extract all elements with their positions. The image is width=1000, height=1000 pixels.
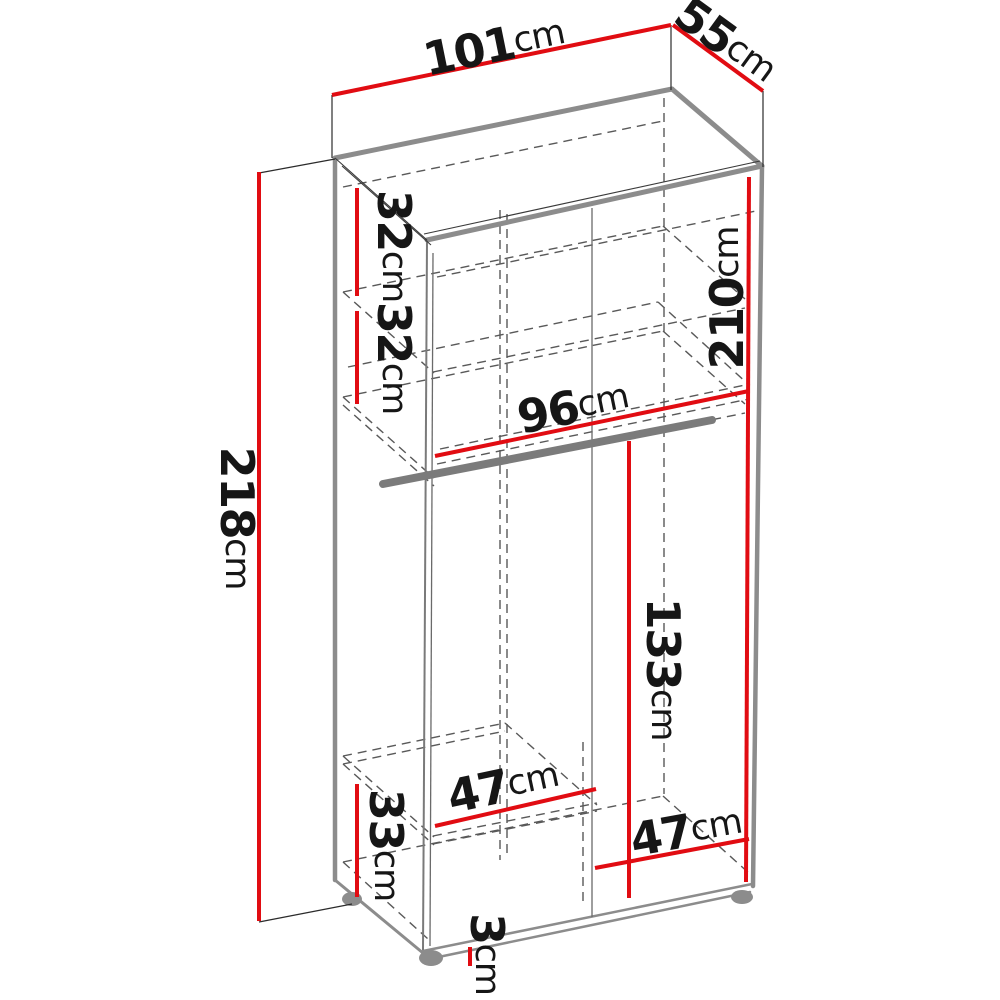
dim-number: 47 (626, 804, 695, 868)
dim-number: 133 (636, 598, 690, 690)
dim-number: 101 (419, 16, 519, 87)
foot-front-left (419, 950, 443, 966)
dim-unit: cm (707, 227, 747, 278)
top-panel-underside-back (343, 121, 663, 187)
dim-unit: cm (374, 251, 414, 302)
dim-unit: cm (217, 538, 257, 589)
front-left-edge (423, 240, 427, 950)
dim-unit: cm (643, 689, 683, 740)
dim-label-218: 218cm (210, 447, 264, 590)
dim-label-210: 210cm (700, 227, 754, 370)
dim-number: 218 (210, 447, 264, 539)
dim-label-33: 33cm (359, 789, 413, 901)
dim-number: 33 (359, 789, 413, 850)
diagram-canvas: 101cm 55cm 218cm 32cm 32cm 210cm 96cm 13… (0, 0, 1000, 1000)
dim-number: 3 (460, 913, 514, 944)
dim-label-55: 55cm (665, 0, 788, 96)
dim-unit: cm (467, 944, 507, 995)
extension-line (259, 159, 335, 173)
foot-front-right (731, 890, 753, 904)
dim-number: 32 (367, 302, 421, 363)
dim-number: 47 (442, 759, 513, 825)
inner-left-edge (430, 253, 433, 946)
dim-label-32b: 32cm (367, 302, 421, 414)
top-back-edge (335, 89, 672, 158)
dim-label-101: 101cm (419, 5, 570, 86)
dim-number: 96 (513, 380, 584, 445)
extension-line (259, 904, 352, 922)
dim-label-32a: 32cm (367, 190, 421, 302)
dim-label-133: 133cm (636, 598, 690, 741)
dim-label-96: 96cm (513, 369, 634, 444)
dim-number: 210 (700, 278, 754, 370)
dim-unit: cm (374, 363, 414, 414)
feet (342, 890, 753, 966)
dim-number: 32 (367, 190, 421, 251)
dim-unit: cm (366, 850, 406, 901)
dim-label-47l: 47cm (442, 748, 563, 824)
dimension-labels: 101cm 55cm 218cm 32cm 32cm 210cm 96cm 13… (210, 0, 787, 995)
wardrobe-dimension-diagram: 101cm 55cm 218cm 32cm 32cm 210cm 96cm 13… (0, 0, 1000, 1000)
top-right-edge (672, 89, 762, 166)
dim-unit: cm (510, 12, 568, 61)
right-outer-edge (753, 166, 762, 886)
dim-label-3: 3cm (460, 913, 514, 995)
dim-label-47r: 47cm (626, 795, 746, 868)
